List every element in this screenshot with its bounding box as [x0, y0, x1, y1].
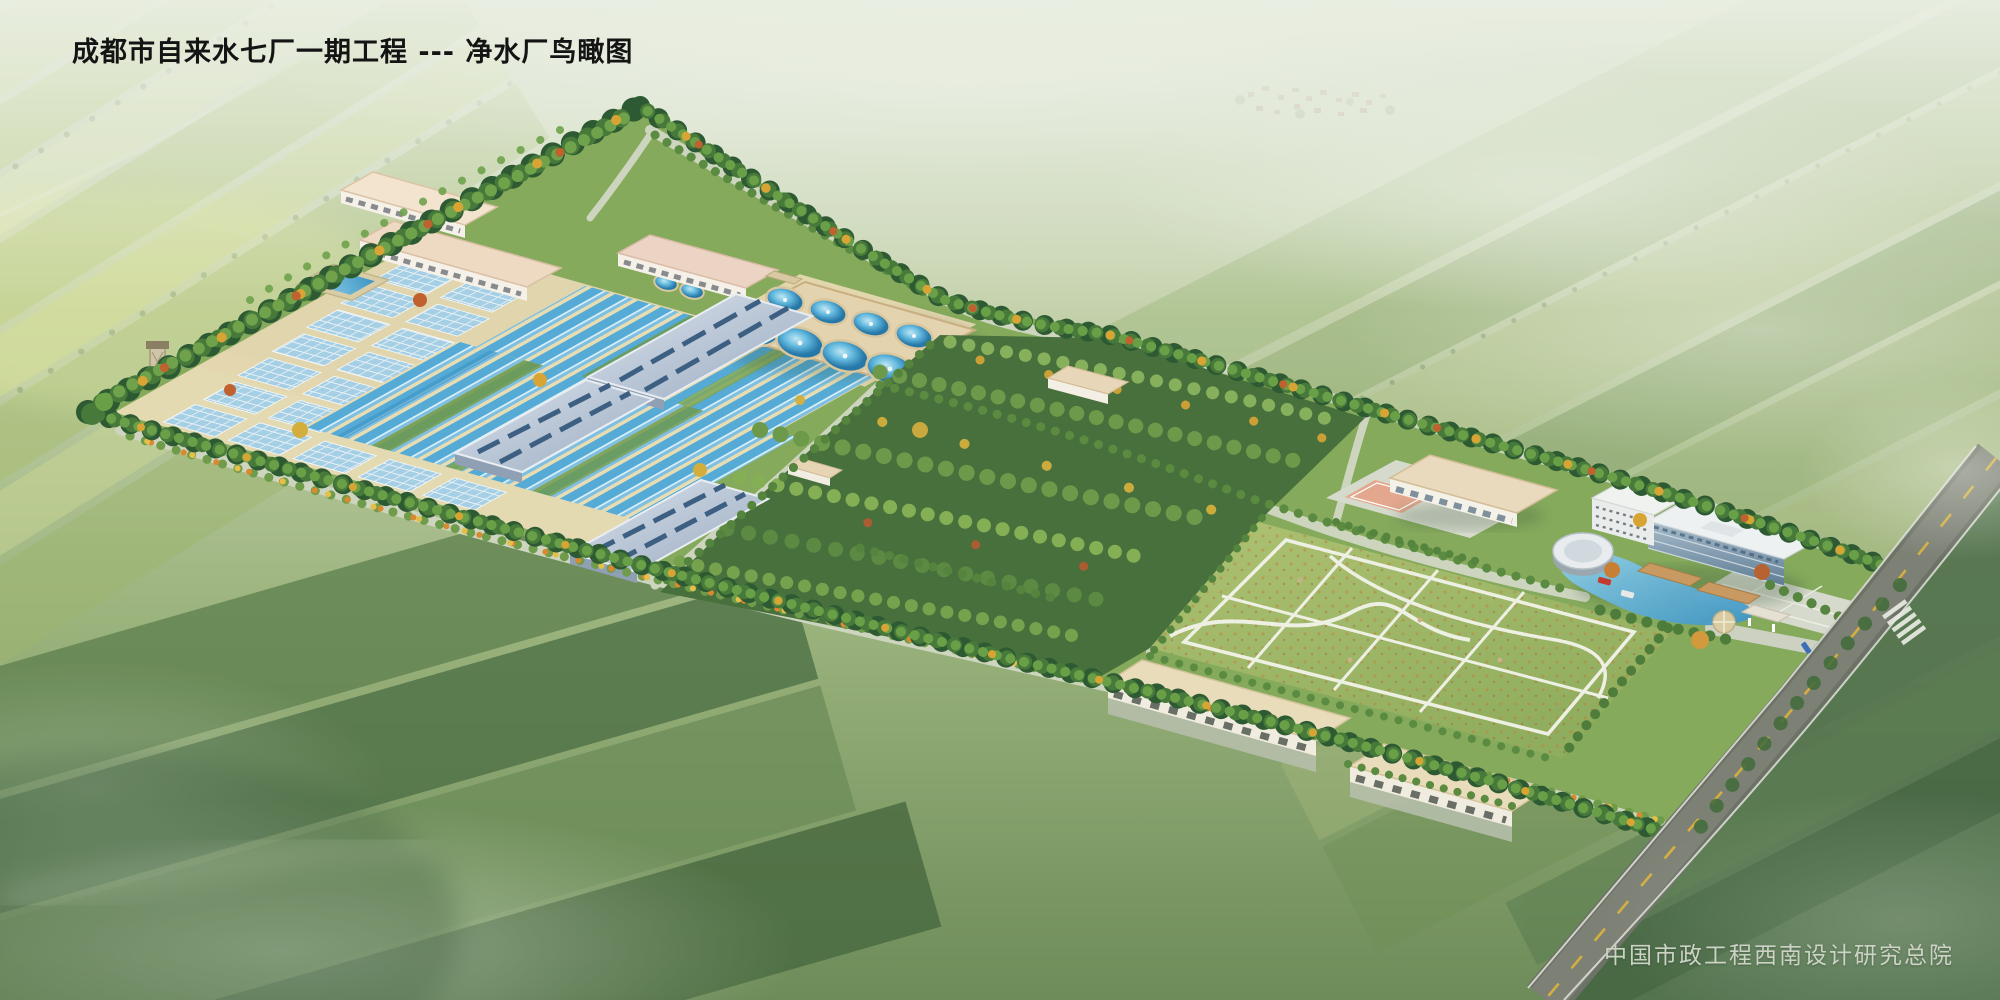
- credit-text: 中国市政工程西南设计研究总院: [1604, 936, 1954, 970]
- aerial-rendering: [0, 0, 2000, 1000]
- compass-plaza: [1713, 611, 1735, 633]
- page-title: 成都市自来水七厂一期工程 --- 净水厂鸟瞰图: [72, 30, 633, 69]
- round-building: [1553, 533, 1613, 576]
- rendering-canvas: 成都市自来水七厂一期工程 --- 净水厂鸟瞰图 中国市政工程西南设计研究总院: [0, 0, 2000, 1000]
